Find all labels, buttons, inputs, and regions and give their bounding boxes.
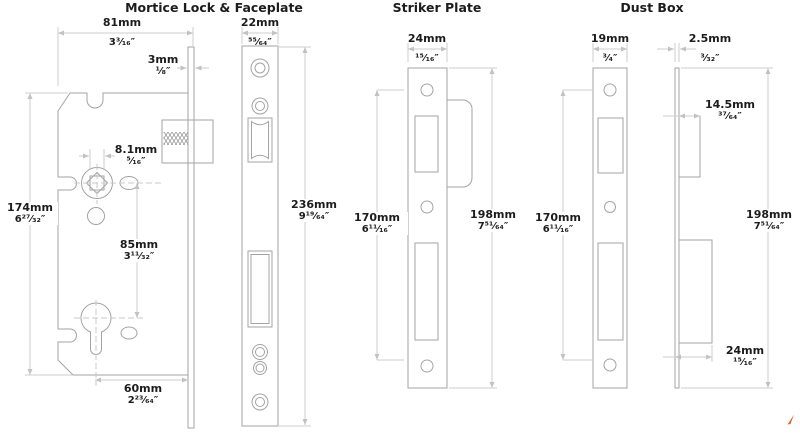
screw-hole-inner [256,364,264,372]
screw-hole-inner [255,63,265,73]
screw-hole [604,84,616,96]
dust-box-front-view [593,68,627,388]
dim-label-dust-centres: 170mm 6¹¹⁄₁₆″ [527,212,589,235]
title-striker-plate: Striker Plate [377,1,497,15]
dim-label-faceplate-width: 22mm ⁵⁵⁄₆₄″ [230,17,290,48]
technical-drawing-canvas: Mortice Lock & Faceplate Striker Plate D… [0,0,800,436]
dim-label-lock-backset: 60mm 2²³⁄₆₄″ [113,383,173,406]
screw-hole-inner [256,102,265,111]
deadbolt-opening [248,251,272,327]
dim-label-dust-width: 19mm ³⁄₄″ [580,33,640,64]
dim-label-lock-centres: 85mm 3¹¹⁄₃₂″ [107,239,171,262]
deadbolt-opening [415,243,438,340]
latch-dust-box [679,116,700,177]
dim-label-lock-width: 81mm 3³⁄₁₆″ [90,17,154,48]
screw-hole [252,98,268,114]
screw-hole [605,202,616,213]
screw-hole [252,394,268,410]
title-dust-box: Dust Box [592,1,712,15]
brand-mark [788,415,795,425]
dim-label-striker-centres: 170mm 6¹¹⁄₁₆″ [346,212,408,235]
title-mortice-lock: Mortice Lock & Faceplate [104,1,324,15]
screw-hole [421,201,433,213]
faceplate-front-view [242,46,278,426]
dim-ext-faceplate-height [279,47,311,426]
screw-hole [254,362,267,375]
screw-hole [604,359,616,371]
dim-label-dust-box-depth: 24mm ¹⁵⁄₁₆″ [715,345,775,368]
screw-hole-inner [256,348,265,357]
dim-label-dust-latch-depth: 14.5mm ³⁷⁄₆₄″ [699,99,761,122]
dim-label-dust-total: 198mm 7⁵¹⁄₆₄″ [737,209,800,232]
deadbolt-dust-box [679,240,712,343]
latch-spring-hatch [164,132,188,145]
striker-lip [447,100,472,187]
faceplate-edge-view [188,47,194,428]
dim-ext-lock-height [25,93,72,375]
latch-opening [598,118,623,173]
screw-hole [251,59,269,77]
dim-label-dust-thickness: 2.5mm ³⁄₃₂″ [680,33,740,64]
dim-label-lock-height: 174mm 6²⁷⁄₃₂″ [2,202,58,225]
latch-opening-bobbin [252,122,269,159]
dim-label-striker-total: 198mm 7⁵¹⁄₆₄″ [461,209,525,232]
deadbolt-opening-inner [251,255,269,324]
screw-hole [253,345,268,360]
dim-ext-dust-thickness [675,43,679,62]
screw-hole-inner [256,398,265,407]
cylinder-centerlines [74,300,144,386]
dim-label-face-thickness: 3mm ¹⁄₈″ [133,54,193,77]
dim-label-striker-width: 24mm ¹⁵⁄₁₆″ [397,33,457,64]
screw-hole [421,360,433,372]
deadbolt-opening [598,243,623,340]
fixing-hole-round [88,208,105,225]
dim-label-follower-square: 8.1mm ⁵⁄₁₆″ [105,144,167,167]
fixing-hole-oval-lower [121,327,137,339]
dim-label-faceplate-height: 236mm 9¹⁹⁄₆₄″ [284,199,344,222]
screw-hole [421,84,433,96]
latch-opening [415,116,438,172]
faceplate-outline [242,46,278,426]
